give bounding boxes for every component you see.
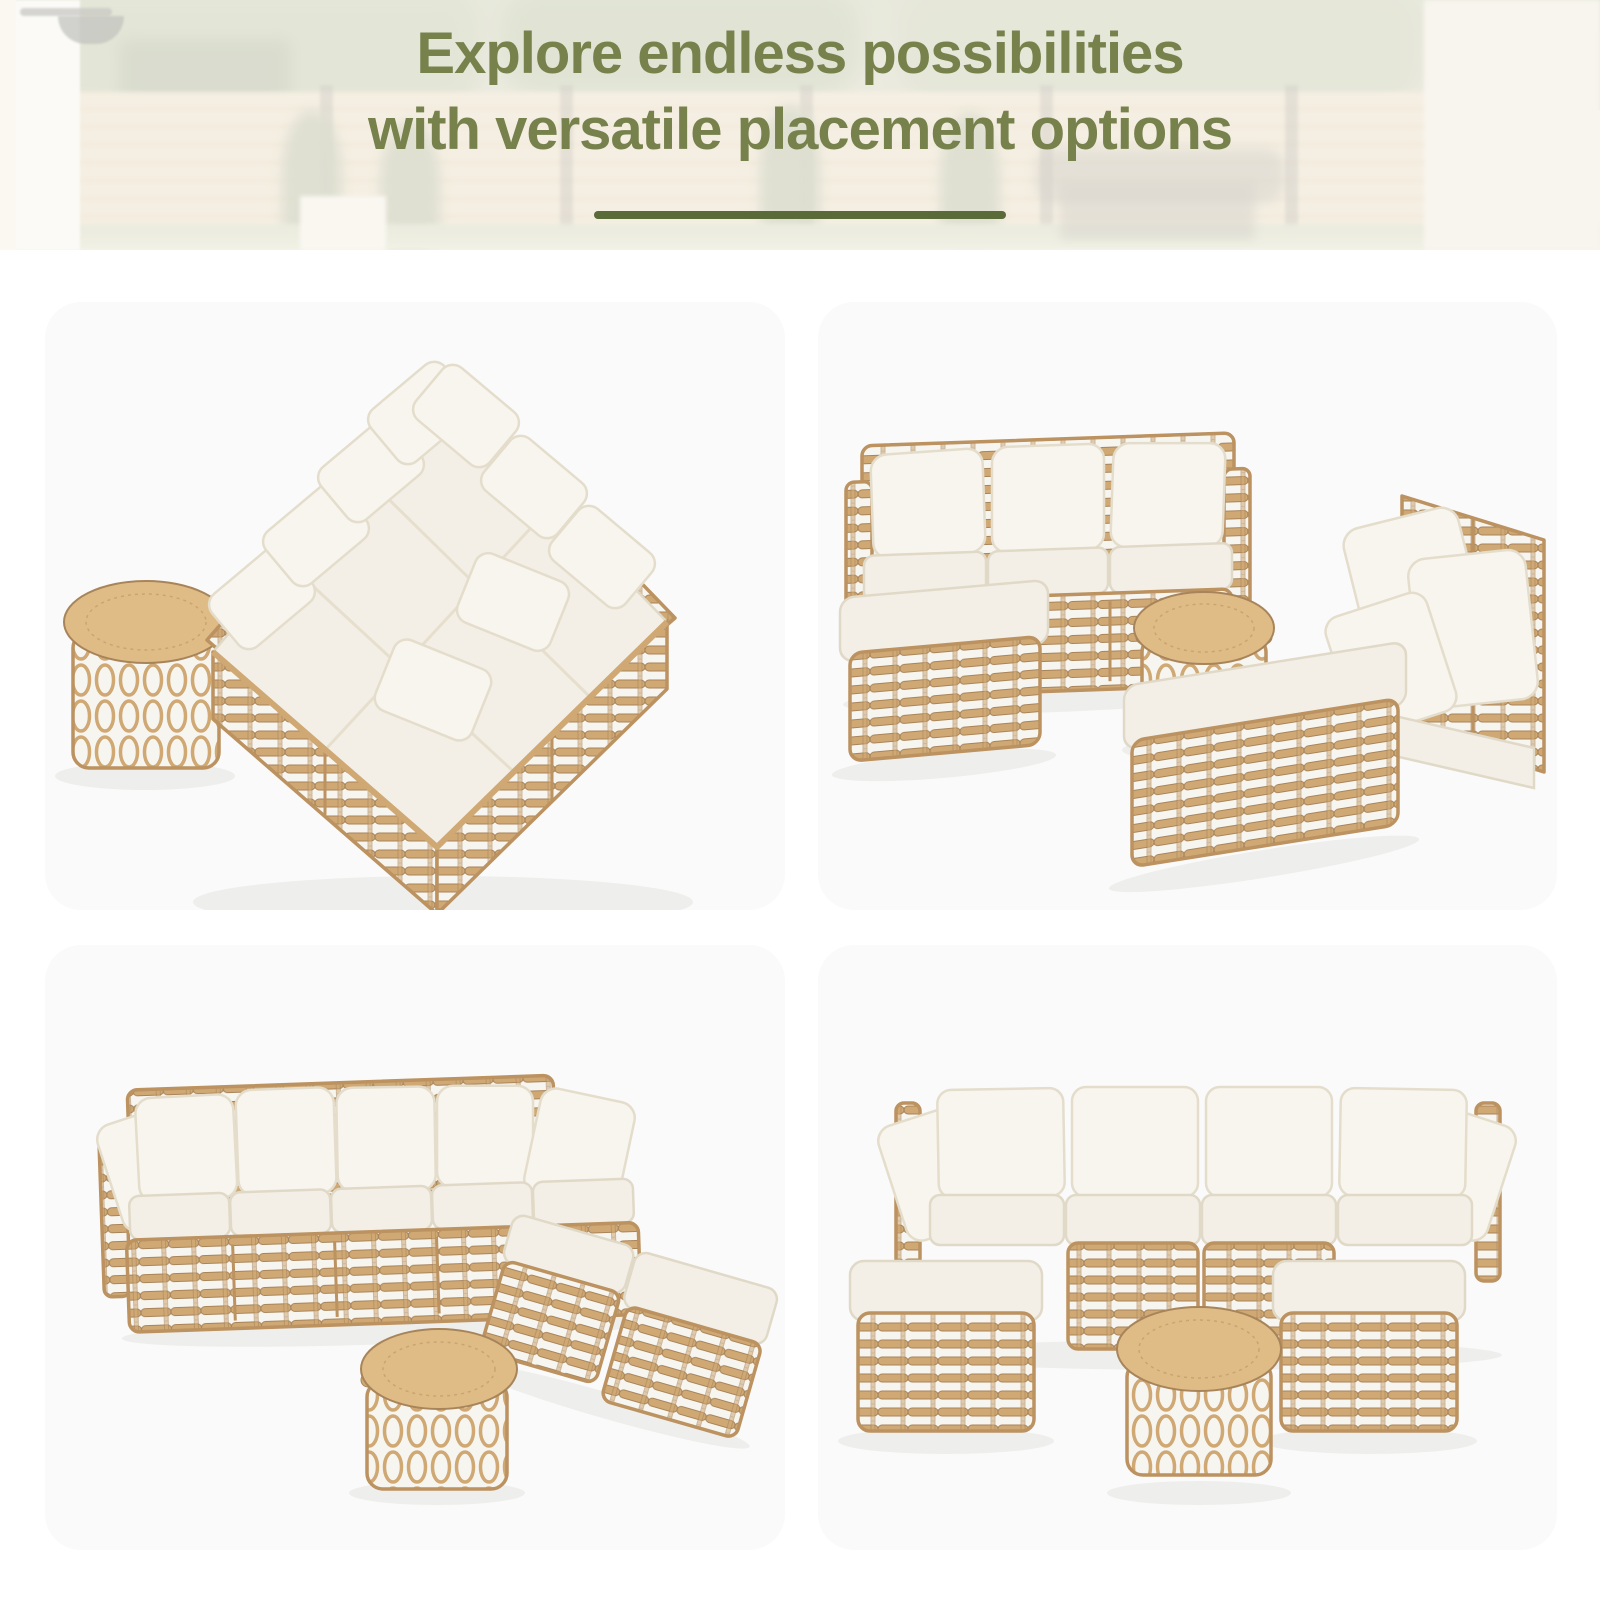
- round-coffee-table: [349, 1329, 525, 1505]
- hero-title-line2: with versatile placement options: [0, 92, 1600, 168]
- round-coffee-table: [1107, 1307, 1291, 1505]
- right-ottoman: [1261, 1261, 1477, 1454]
- l-sectional-illustration: [45, 945, 785, 1550]
- hero-title: Explore endless possibilities with versa…: [0, 16, 1600, 168]
- left-ottoman: [838, 1261, 1054, 1454]
- hero-section: Explore endless possibilities with versa…: [0, 0, 1600, 250]
- round-side-table: [55, 581, 235, 790]
- wicker-base: [850, 637, 1040, 762]
- sofa-chaise-illustration: [818, 302, 1557, 910]
- title-underline: [594, 211, 1006, 219]
- daybed: [193, 356, 693, 910]
- bench-ottoman: [832, 579, 1056, 788]
- hero-title-line1: Explore endless possibilities: [0, 16, 1600, 92]
- daybed-illustration: [45, 302, 785, 910]
- u-sectional-illustration: [818, 945, 1557, 1550]
- config-panel-u-sectional: [818, 945, 1557, 1550]
- wicker-base: [858, 1313, 1034, 1431]
- wicker-base: [1281, 1313, 1457, 1431]
- config-panel-sofa-chaise: [818, 302, 1557, 910]
- config-panel-l-sectional: [45, 945, 785, 1550]
- config-panel-daybed: [45, 302, 785, 910]
